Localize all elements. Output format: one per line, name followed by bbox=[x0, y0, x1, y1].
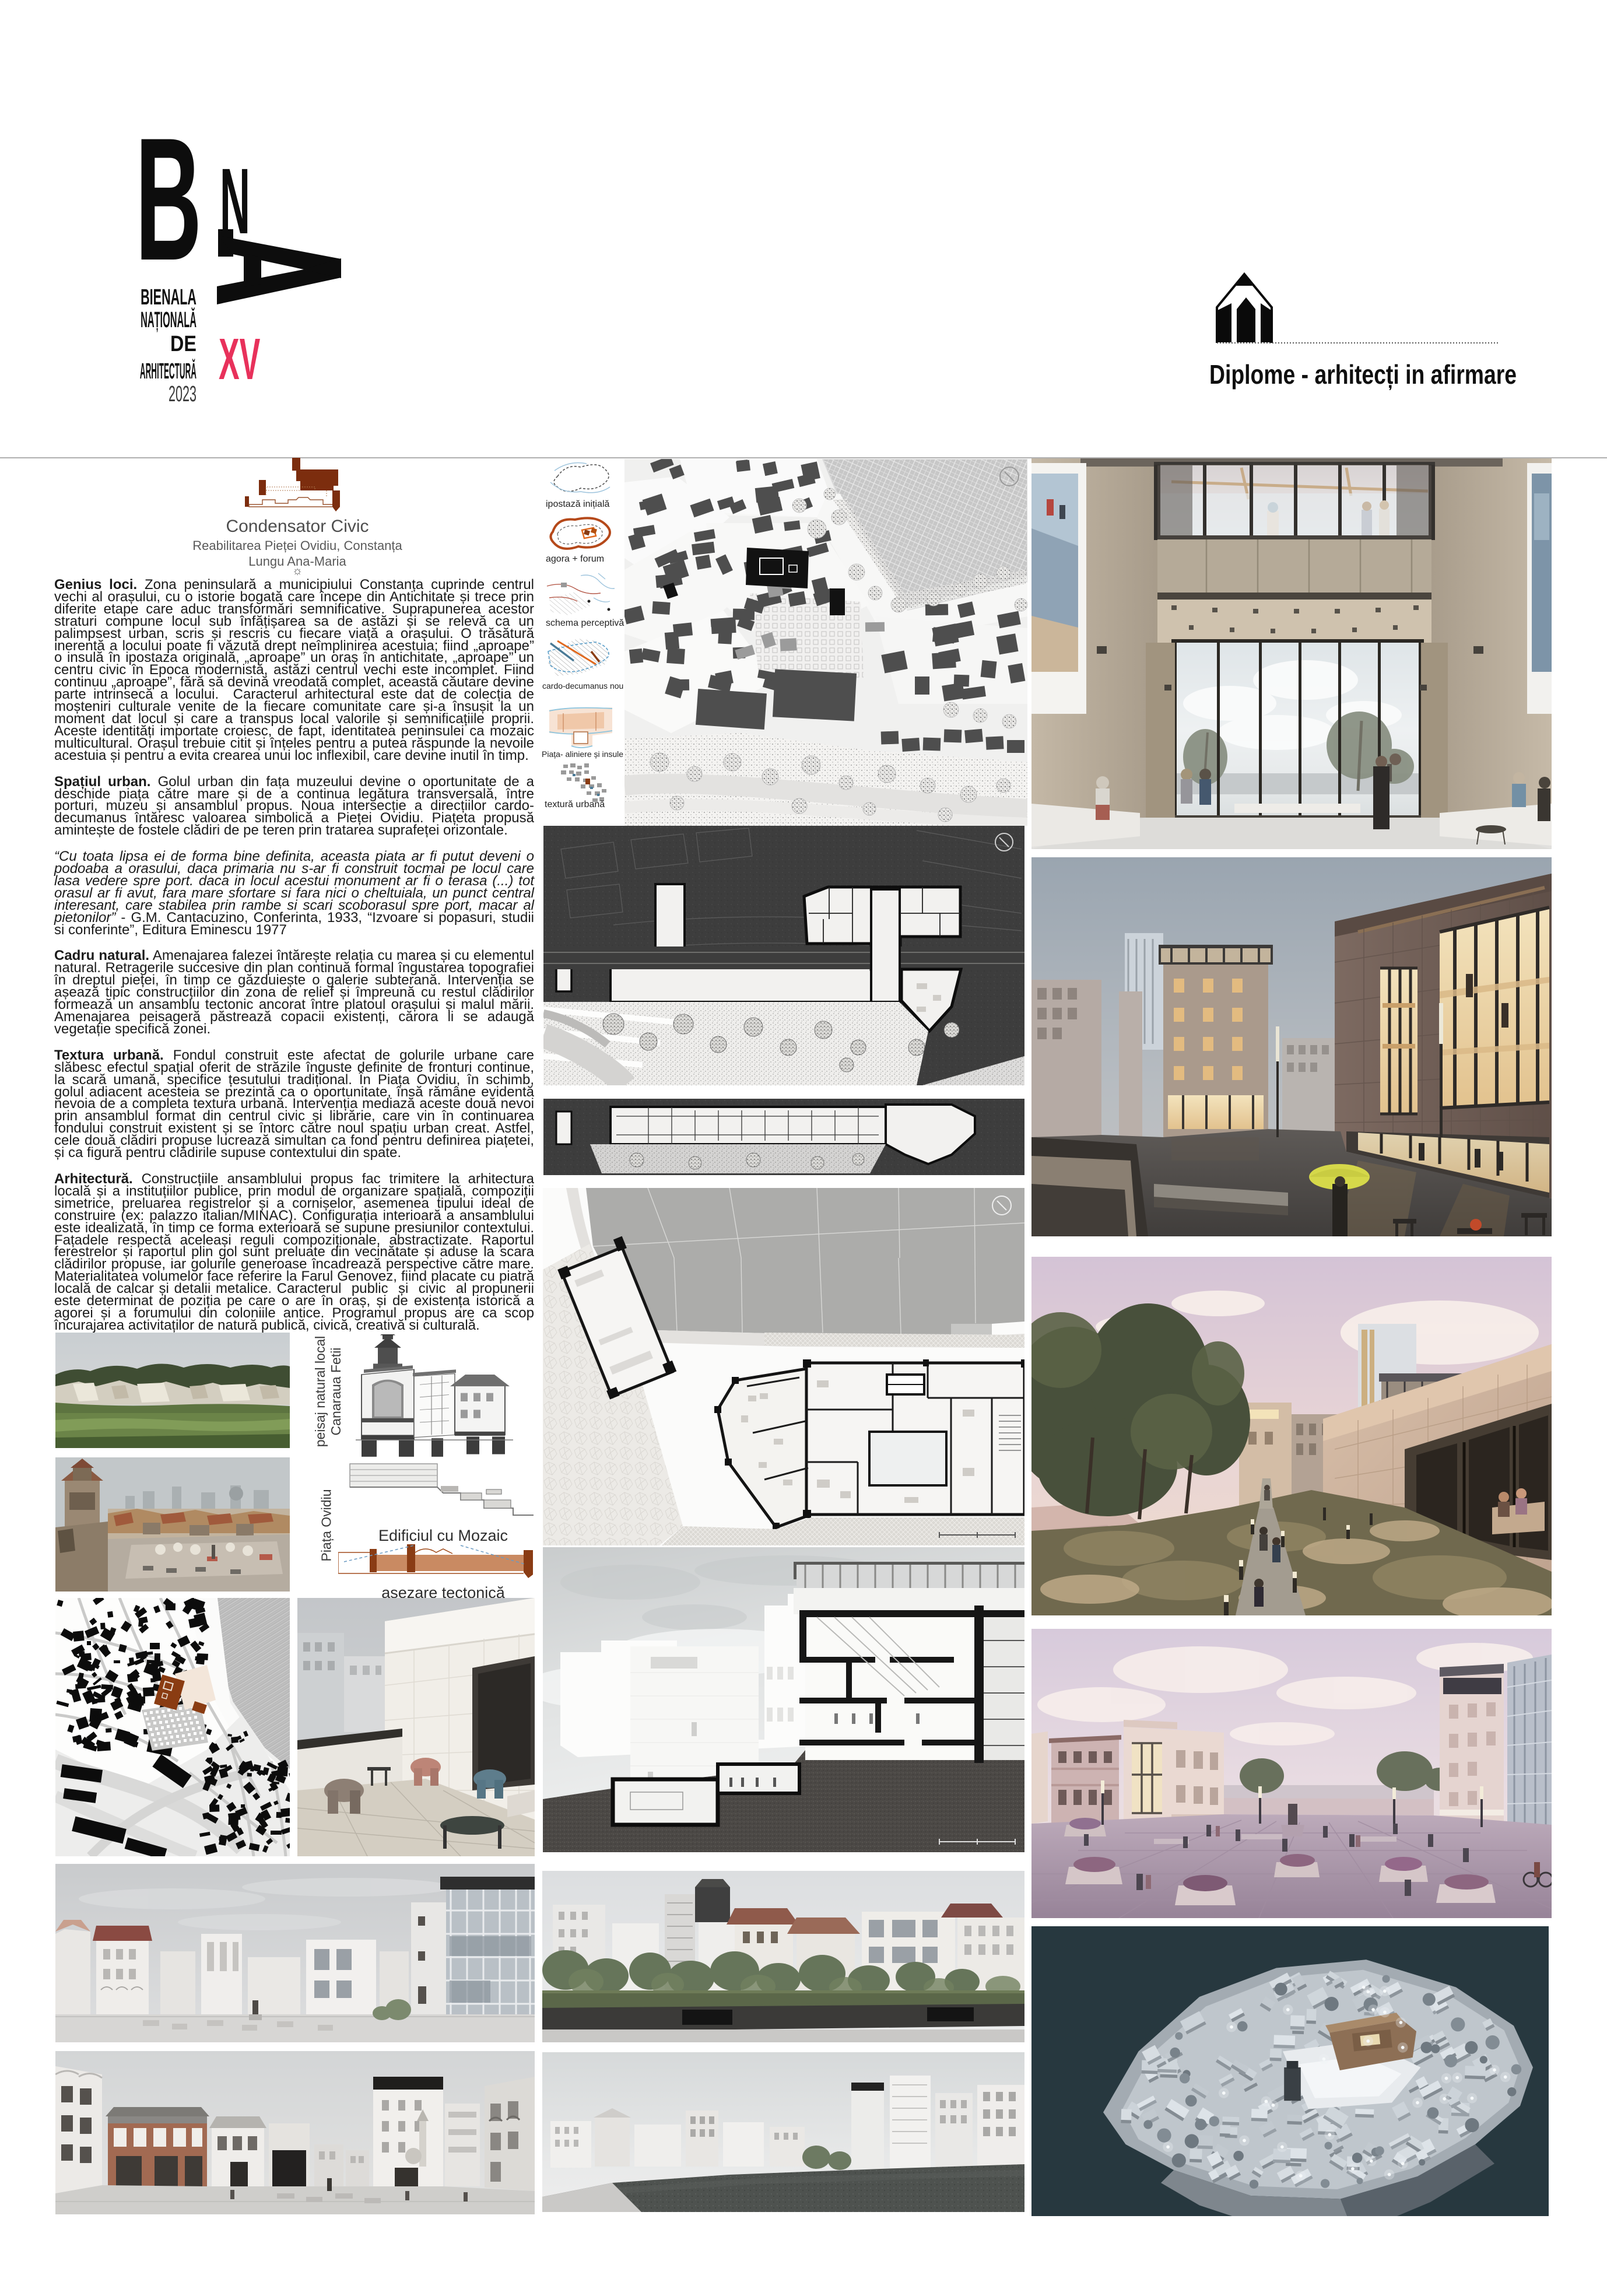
svg-text:ipostază inițială: ipostază inițială bbox=[546, 499, 610, 509]
svg-text:B: B bbox=[135, 111, 202, 297]
svg-text:cardo-decumanus nou: cardo-decumanus nou bbox=[542, 681, 623, 690]
svg-text:2023: 2023 bbox=[169, 381, 197, 406]
svg-text:ARHITECTURĂ: ARHITECTURĂ bbox=[140, 359, 197, 384]
svg-text:Diplome - arhitecți in afirmar: Diplome - arhitecți in afirmare bbox=[1209, 359, 1517, 390]
svg-text:schema perceptivă: schema perceptivă bbox=[546, 618, 624, 628]
svg-text:BIENALA: BIENALA bbox=[141, 285, 197, 310]
svg-text:XV: XV bbox=[219, 326, 260, 391]
svg-text:DE: DE bbox=[170, 332, 197, 356]
svg-text:textură urbană: textură urbană bbox=[545, 800, 605, 809]
svg-text:NAȚIONALĂ: NAȚIONALĂ bbox=[141, 307, 197, 332]
svg-text:Piața- aliniere și insule: Piața- aliniere și insule bbox=[542, 749, 623, 759]
svg-text:agora + forum: agora + forum bbox=[546, 554, 604, 564]
